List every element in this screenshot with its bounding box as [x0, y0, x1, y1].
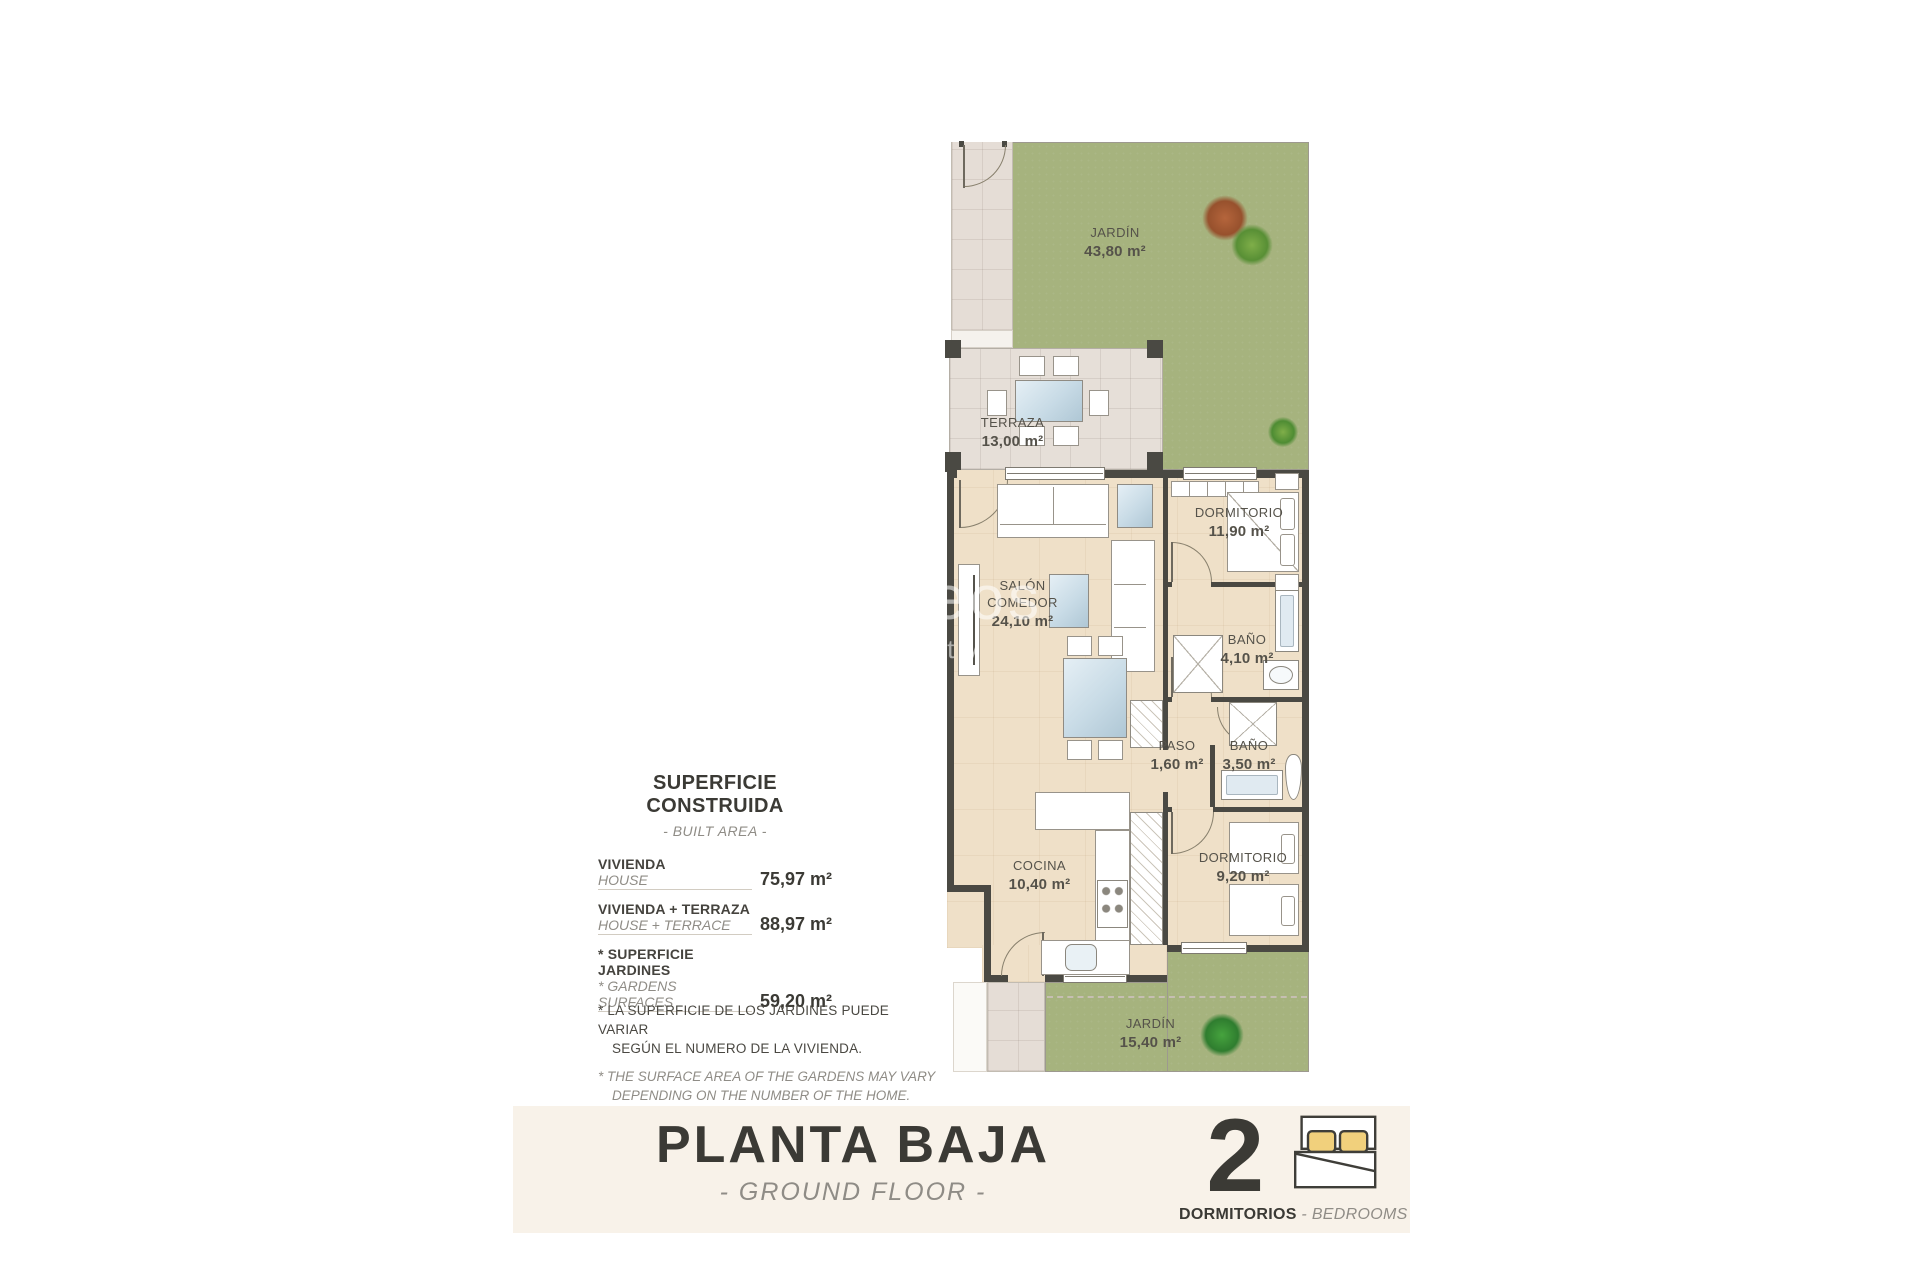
kitchen-sink [1065, 944, 1097, 971]
partition-dorm1-bano1-stub [1167, 582, 1172, 587]
bedrooms-block: 2 DORMITORIOS - BEDROOMS [1179, 1111, 1408, 1224]
dorm2-single-bed [1229, 884, 1299, 936]
partition-paso-dorm2 [1213, 807, 1302, 812]
area-row-vivienda-terraza: VIVIENDA + TERRAZA HOUSE + TERRACE 88,97… [598, 901, 832, 935]
dining-table [1063, 658, 1127, 738]
garden-dashed-boundary [1047, 996, 1307, 998]
wardrobe-dorm2 [1130, 812, 1163, 945]
sofa [997, 484, 1109, 538]
built-area-subtitle: - BUILT AREA - [598, 823, 832, 839]
footnote-en-line1: * THE SURFACE AREA OF THE GARDENS MAY VA… [598, 1068, 938, 1087]
label-bano2: BAÑO 3,50 m² [1205, 738, 1293, 774]
label-jardin-top: JARDÍN 43,80 m² [1050, 225, 1180, 261]
floor-title-block: PLANTA BAJA - GROUND FLOOR - [573, 1119, 1133, 1207]
window-salon-terrace [1005, 467, 1105, 480]
wall-kitchen-bottom-a [984, 975, 1008, 982]
dorm1-nightstand [1275, 473, 1299, 490]
partition-salon-right [1163, 477, 1168, 700]
lower-garden [1167, 947, 1309, 1072]
row-value: 75,97 m² [760, 869, 832, 890]
footer-banner: PLANTA BAJA - GROUND FLOOR - 2 DORMITORI… [513, 1106, 1410, 1233]
garden-gate-leaf [963, 145, 965, 188]
wall-left-lower [984, 885, 991, 982]
label-jardin-bottom: JARDÍN 15,40 m² [1088, 1016, 1213, 1052]
built-area-title: SUPERFICIE CONSTRUIDA [598, 772, 832, 818]
terrace-chair [987, 390, 1007, 416]
row-label-en: HOUSE + TERRACE [598, 917, 752, 933]
dining-chair [1067, 740, 1092, 760]
built-area-rows: VIVIENDA HOUSE 75,97 m² VIVIENDA + TERRA… [598, 856, 832, 1012]
floor-subtitle: - GROUND FLOOR - [573, 1178, 1133, 1207]
label-cocina: COCINA 10,40 m² [987, 858, 1092, 894]
partition-cocina-dorm2 [1163, 807, 1168, 945]
dining-chair [1067, 636, 1092, 656]
partition-salon-paso-stub2 [1163, 792, 1168, 807]
door-salon-entry-leaf [959, 480, 961, 528]
lower-walkway [987, 982, 1045, 1072]
kitchen-counter-top [1035, 792, 1130, 830]
footnote-es-line2: SEGÚN EL NUMERO DE LA VIVIENDA. [612, 1040, 938, 1059]
dining-chair [1098, 740, 1123, 760]
terrace-pillar [1147, 452, 1163, 472]
label-terraza: TERRAZA 13,00 m² [960, 415, 1065, 451]
built-area-panel: SUPERFICIE CONSTRUIDA - BUILT AREA - VIV… [598, 772, 832, 1023]
terrace-pillar [1147, 340, 1163, 358]
dining-chair [1098, 636, 1123, 656]
area-row-vivienda: VIVIENDA HOUSE 75,97 m² [598, 856, 832, 890]
gardens-footnote: * LA SUPERFICIE DE LOS JARDINES PUEDE VA… [598, 1002, 938, 1105]
floor-title: PLANTA BAJA [573, 1119, 1133, 1171]
terrace-pillar [945, 452, 961, 472]
terrace-chair [1089, 390, 1109, 416]
terrace-chair [1053, 356, 1079, 376]
label-salon: SALÓN COMEDOR 24,10 m² [970, 578, 1075, 631]
floor-plan: JARDÍN 43,80 m² TERRAZA 13,00 m² SALÓN C… [945, 140, 1313, 1072]
plant-green [1231, 224, 1273, 266]
row-label-es: VIVIENDA [598, 856, 752, 872]
bano2-bathtub [1221, 770, 1283, 800]
door-dorm2-leaf [1171, 812, 1173, 854]
row-label-en: HOUSE [598, 872, 752, 888]
door-dorm1-leaf [1171, 542, 1173, 582]
window-dorm2 [1181, 942, 1247, 954]
window-dorm1 [1183, 467, 1257, 480]
label-dormitorio1: DORMITORIO 11,90 m² [1178, 505, 1300, 541]
plant-green-small [1268, 417, 1298, 447]
row-label-es: VIVIENDA + TERRAZA [598, 901, 752, 917]
wall-left-upper [947, 470, 954, 892]
label-bano1: BAÑO 4,10 m² [1197, 632, 1297, 668]
terrace-chair [1019, 356, 1045, 376]
bedrooms-count: 2 [1206, 1111, 1264, 1203]
label-dormitorio2: DORMITORIO 9,20 m² [1182, 850, 1304, 886]
row-value: 88,97 m² [760, 914, 832, 935]
kitchen-stove [1097, 880, 1128, 928]
side-table [1117, 484, 1153, 528]
dorm1-nightstand [1275, 574, 1299, 591]
terrace-pillar [945, 340, 961, 358]
lower-side-strip [953, 982, 987, 1072]
bedrooms-label: DORMITORIOS - BEDROOMS [1179, 1206, 1408, 1224]
row-label-es: * SUPERFICIE JARDINES [598, 946, 752, 978]
footnote-es-line1: * LA SUPERFICIE DE LOS JARDINES PUEDE VA… [598, 1002, 938, 1040]
bed-icon [1276, 1112, 1380, 1201]
footnote-en-line2: DEPENDING ON THE NUMBER OF THE HOME. [612, 1087, 938, 1106]
